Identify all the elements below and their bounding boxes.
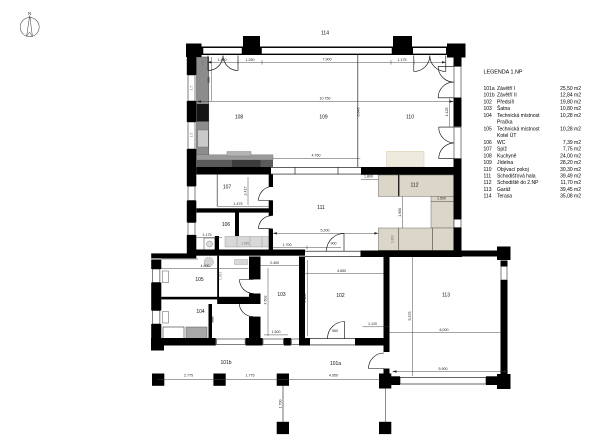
svg-text:2.417: 2.417 (244, 187, 248, 196)
svg-text:Jídelna: Jídelna (497, 160, 513, 166)
svg-text:107: 107 (484, 147, 493, 153)
svg-text:1.175: 1.175 (398, 58, 407, 62)
svg-text:1.700: 1.700 (283, 243, 292, 247)
svg-text:N: N (28, 11, 31, 16)
svg-text:6.000: 6.000 (440, 328, 449, 332)
svg-text:24,00 m2: 24,00 m2 (560, 153, 581, 159)
svg-text:Předsíň: Předsíň (497, 100, 514, 106)
svg-text:112: 112 (484, 180, 492, 186)
svg-text:108: 108 (235, 115, 244, 121)
svg-text:Schodiště do 2.NP: Schodiště do 2.NP (497, 180, 539, 186)
svg-text:1.700: 1.700 (279, 400, 283, 409)
svg-text:105: 105 (484, 126, 493, 132)
svg-text:109: 109 (319, 115, 328, 121)
svg-text:108: 108 (484, 153, 493, 159)
svg-text:Garáž: Garáž (497, 187, 511, 193)
svg-text:Kotel ÚT: Kotel ÚT (497, 132, 516, 139)
svg-text:900: 900 (201, 60, 205, 66)
svg-text:28,20 m2: 28,20 m2 (560, 160, 581, 166)
svg-text:1.981: 1.981 (219, 272, 223, 280)
svg-text:39,49 m2: 39,49 m2 (560, 174, 581, 180)
svg-text:905: 905 (207, 77, 211, 83)
svg-text:4.502: 4.502 (264, 296, 268, 305)
svg-text:4.183: 4.183 (303, 294, 307, 303)
svg-text:900: 900 (331, 241, 337, 245)
svg-text:10,28 m2: 10,28 m2 (560, 113, 581, 119)
svg-text:25,50 m2: 25,50 m2 (560, 86, 581, 92)
svg-text:105: 105 (195, 277, 204, 283)
svg-text:1.900: 1.900 (398, 208, 402, 217)
svg-text:5.200: 5.200 (321, 229, 330, 233)
svg-text:113: 113 (442, 293, 450, 299)
svg-text:1.800: 1.800 (364, 175, 373, 179)
svg-text:12,84 m2: 12,84 m2 (560, 93, 581, 99)
svg-text:Kuchyně: Kuchyně (497, 153, 517, 159)
svg-text:102: 102 (484, 100, 493, 106)
svg-text:4.650: 4.650 (337, 269, 346, 273)
svg-text:Šatna: Šatna (497, 105, 510, 112)
svg-text:104: 104 (484, 113, 493, 119)
svg-text:Technická místnost: Technická místnost (497, 126, 540, 132)
svg-text:2.775: 2.775 (184, 373, 193, 377)
svg-text:110: 110 (484, 167, 492, 173)
svg-text:11,70 m2: 11,70 m2 (561, 180, 582, 186)
svg-text:1.425: 1.425 (445, 108, 449, 117)
svg-text:7.900: 7.900 (323, 58, 332, 62)
svg-text:113: 113 (484, 187, 492, 193)
svg-text:1.500: 1.500 (437, 197, 446, 201)
svg-text:107: 107 (223, 184, 232, 190)
svg-text:Obývací pokoj: Obývací pokoj (497, 167, 529, 173)
svg-text:1.250: 1.250 (246, 58, 255, 62)
svg-text:10.750: 10.750 (320, 97, 331, 101)
svg-text:10,80 m2: 10,80 m2 (560, 106, 581, 112)
svg-text:4.800: 4.800 (201, 264, 210, 268)
svg-text:6.040: 6.040 (357, 108, 361, 117)
svg-text:30,30 m2: 30,30 m2 (560, 167, 581, 173)
svg-text:101a: 101a (330, 361, 341, 367)
svg-text:1.120: 1.120 (368, 322, 377, 326)
svg-text:4.950: 4.950 (329, 373, 338, 377)
svg-text:101a: 101a (484, 86, 495, 92)
svg-text:1.775: 1.775 (246, 373, 255, 377)
svg-text:104: 104 (196, 309, 205, 315)
svg-text:7,39 m2: 7,39 m2 (563, 140, 581, 146)
svg-text:1.800: 1.800 (391, 235, 395, 243)
svg-text:Pračka: Pračka (497, 120, 513, 126)
svg-text:102: 102 (336, 293, 345, 299)
svg-text:Terasa: Terasa (497, 194, 512, 200)
svg-text:4.760: 4.760 (312, 154, 321, 158)
svg-text:109: 109 (484, 160, 493, 166)
svg-text:Spíž: Spíž (497, 147, 508, 153)
svg-text:1.5: 1.5 (190, 86, 194, 91)
svg-text:Technická místnost: Technická místnost (497, 113, 540, 119)
svg-text:101b: 101b (220, 360, 231, 366)
svg-text:110: 110 (406, 115, 414, 121)
svg-text:103: 103 (277, 292, 286, 298)
svg-text:1.500: 1.500 (272, 330, 281, 334)
svg-text:2.400: 2.400 (270, 261, 279, 265)
svg-text:5.900: 5.900 (439, 367, 448, 371)
svg-text:WC: WC (497, 140, 506, 146)
svg-text:103: 103 (484, 106, 493, 112)
svg-text:Závětří II: Závětří II (497, 93, 517, 99)
svg-text:1.175: 1.175 (203, 233, 212, 237)
svg-text:1.475: 1.475 (234, 202, 243, 206)
svg-text:1.5: 1.5 (190, 133, 194, 138)
svg-text:106: 106 (484, 140, 493, 146)
svg-text:960: 960 (332, 329, 338, 333)
svg-text:39,45 m2: 39,45 m2 (560, 187, 581, 193)
svg-text:35,08 m2: 35,08 m2 (560, 194, 581, 200)
svg-text:7,75 m2: 7,75 m2 (563, 147, 581, 153)
svg-text:112: 112 (411, 182, 419, 188)
svg-text:Schodišťová hala: Schodišťová hala (497, 174, 536, 180)
svg-text:106: 106 (222, 222, 231, 228)
svg-text:101b: 101b (484, 93, 495, 99)
svg-text:114: 114 (321, 30, 329, 36)
svg-text:19,80 m2: 19,80 m2 (560, 100, 581, 106)
svg-text:114: 114 (484, 194, 492, 200)
svg-text:10,28 m2: 10,28 m2 (560, 126, 581, 132)
svg-text:111: 111 (484, 174, 492, 180)
svg-text:1.400: 1.400 (218, 58, 227, 62)
svg-text:Závětří I: Závětří I (497, 86, 515, 92)
svg-text:1.981: 1.981 (241, 242, 249, 246)
svg-text:5.575: 5.575 (408, 312, 412, 321)
svg-text:LEGENDA 1.NP: LEGENDA 1.NP (484, 70, 523, 76)
svg-text:111: 111 (317, 205, 325, 211)
